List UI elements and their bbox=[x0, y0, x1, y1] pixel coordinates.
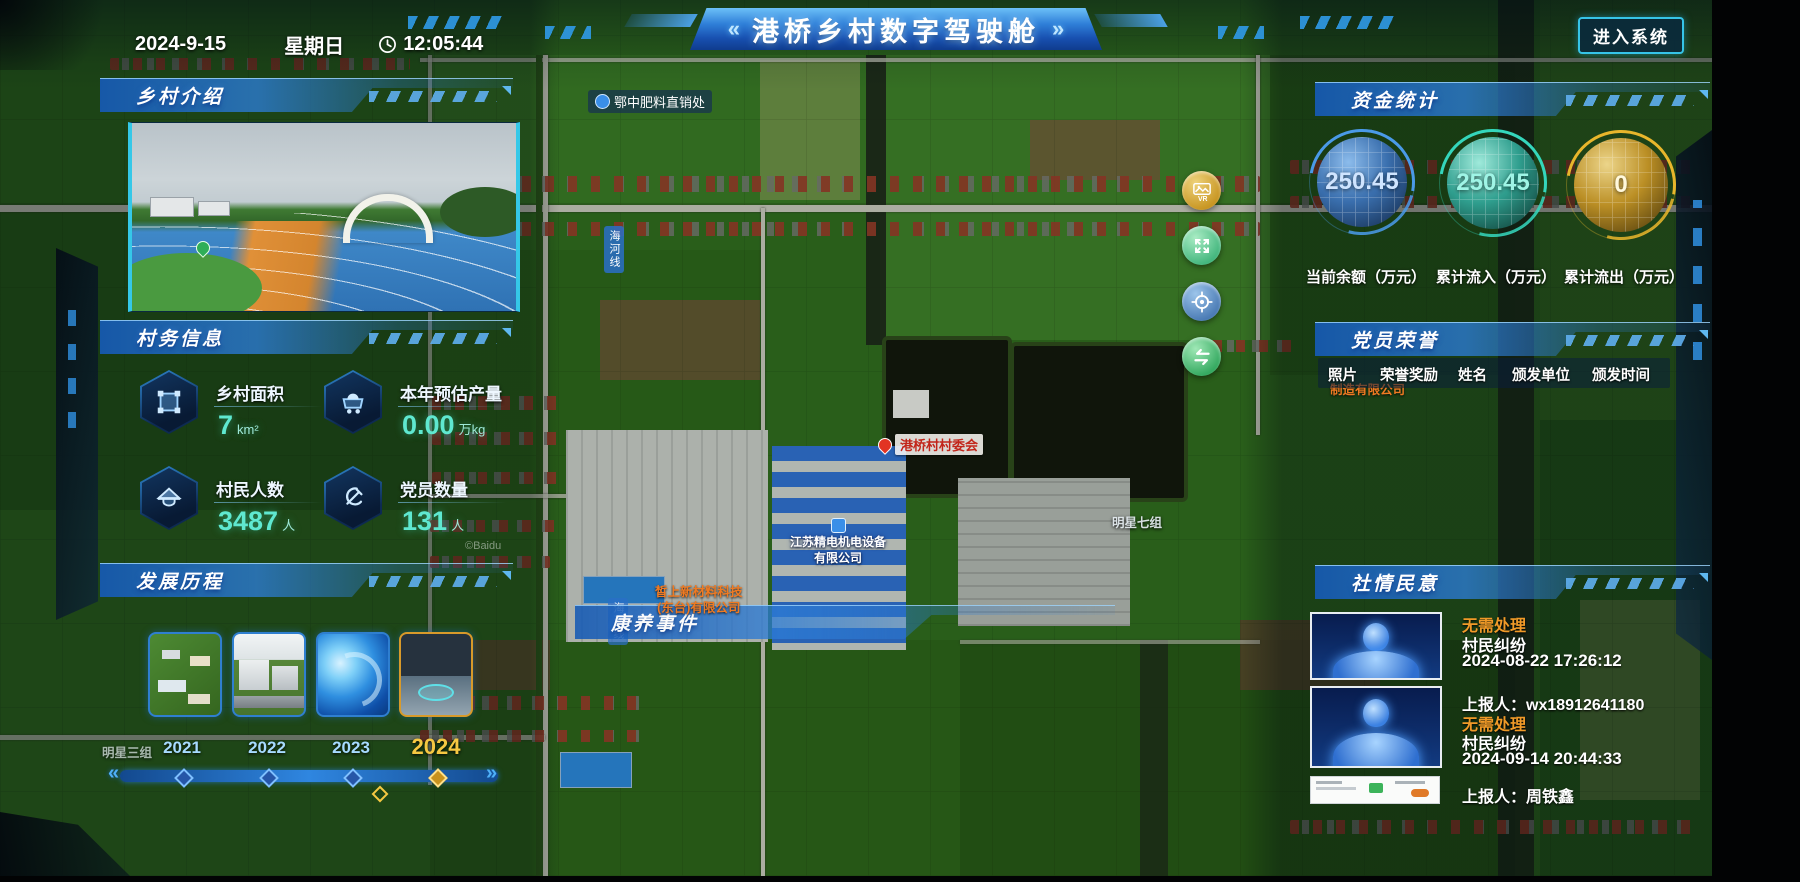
column-issuing-unit: 颁发单位 bbox=[1512, 364, 1570, 385]
opinion-time: 2024-08-22 17:26:12 bbox=[1462, 651, 1622, 671]
village-intro-photo[interactable] bbox=[128, 122, 520, 312]
panel-title: 乡村介绍 bbox=[136, 82, 224, 109]
enter-system-button[interactable]: 进入系统 bbox=[1578, 17, 1684, 54]
label-mingxing-7: 明星七组 bbox=[1112, 512, 1162, 531]
development-thumb-2023[interactable] bbox=[316, 632, 390, 717]
poi-dot-icon bbox=[595, 94, 610, 109]
opinion-item-avatar[interactable] bbox=[1310, 612, 1442, 680]
panel-header-party-honor: 党员荣誉 bbox=[1315, 322, 1710, 356]
locate-button[interactable] bbox=[1182, 282, 1221, 321]
band-stripes bbox=[1566, 335, 1694, 346]
band-stripes bbox=[369, 333, 497, 344]
stat-village-area: 乡村面积 7km² bbox=[134, 368, 324, 460]
year-2024-active[interactable]: 2024 bbox=[412, 734, 461, 760]
panel-title: 发展历程 bbox=[136, 567, 224, 594]
clock-icon bbox=[378, 35, 397, 54]
arch-sculpture bbox=[343, 194, 433, 243]
panel-title: 社情民意 bbox=[1351, 569, 1439, 596]
panel-header-development: 发展历程 bbox=[100, 563, 513, 597]
current-date: 2024-9-15 bbox=[135, 33, 226, 56]
timeline-next-arrow[interactable]: » bbox=[486, 762, 497, 785]
development-thumb-2024[interactable] bbox=[399, 632, 473, 717]
band-stripes bbox=[1566, 95, 1694, 106]
title-left-chevrons: « bbox=[728, 16, 740, 42]
opinion-item-screenshot[interactable] bbox=[1310, 776, 1440, 804]
banner-wing-right bbox=[1094, 14, 1168, 27]
development-thumb-2021[interactable] bbox=[148, 632, 222, 717]
band-stripes bbox=[1566, 578, 1694, 589]
gauge-total-inflow: 250.45 bbox=[1447, 137, 1539, 229]
fullscreen-icon bbox=[1190, 234, 1214, 258]
gauge-label-outflow: 累计流出（万元） bbox=[1564, 266, 1684, 287]
stat-villager-count: 村民人数 3487人 bbox=[134, 464, 324, 556]
panel-title: 党员荣誉 bbox=[1351, 326, 1439, 353]
header-dash-decoration-left bbox=[545, 26, 591, 39]
current-time: 12:05:44 bbox=[403, 33, 483, 56]
panel-header-public-opinion: 社情民意 bbox=[1315, 565, 1710, 599]
layer-switch-button[interactable] bbox=[1182, 337, 1221, 376]
stat-party-member-count: 党员数量 131人 bbox=[318, 464, 508, 556]
poi-jingdian-company[interactable]: 江苏精电机电设备 有限公司 bbox=[790, 518, 886, 566]
development-thumb-2022[interactable] bbox=[232, 632, 306, 717]
column-photo: 照片 bbox=[1328, 364, 1357, 385]
panel-title: 村务信息 bbox=[136, 324, 224, 351]
datetime-bar: 2024-9-15 星期日 12:05:44 bbox=[135, 30, 483, 59]
page-title-banner: « 港桥乡村数字驾驶舱 » bbox=[690, 8, 1102, 50]
swap-arrows-icon bbox=[1189, 344, 1215, 370]
column-issue-date: 颁发时间 bbox=[1592, 364, 1650, 385]
fullscreen-button[interactable] bbox=[1182, 226, 1221, 265]
corner-decoration-top-left bbox=[0, 0, 120, 70]
vr-view-button[interactable]: VR bbox=[1182, 171, 1221, 210]
column-honor-award: 荣誉奖励 bbox=[1380, 364, 1438, 385]
header-dash-decoration-right bbox=[1218, 26, 1264, 39]
poi-village-committee[interactable]: 港桥村村委会 bbox=[878, 434, 983, 455]
locate-icon bbox=[1189, 289, 1215, 315]
party-honor-table-header: 照片 荣誉奖励 姓名 颁发单位 颁发时间 bbox=[1318, 358, 1670, 388]
band-stripes bbox=[369, 576, 497, 587]
vr-image-icon: VR bbox=[1189, 178, 1215, 204]
opinion-item-avatar[interactable] bbox=[1310, 686, 1442, 768]
dashboard-root: ©Baidu 鄂中肥料直销处 港桥村村委会 江苏精电机电设备 有限公司 皙上新材… bbox=[0, 0, 1800, 882]
building-marker-icon bbox=[831, 518, 846, 533]
panel-header-village-info: 村务信息 bbox=[100, 320, 513, 354]
map-pin-icon bbox=[875, 435, 895, 455]
poi-xinshang-company[interactable]: 皙上新材料科技 (东台)有限公司 bbox=[655, 584, 743, 617]
gauge-current-balance: 250.45 bbox=[1317, 137, 1407, 227]
column-name: 姓名 bbox=[1458, 364, 1487, 385]
gauge-label-inflow: 累计流入（万元） bbox=[1436, 266, 1556, 287]
opinion-reporter: 上报人：周铁鑫 bbox=[1462, 783, 1574, 807]
panel-header-funds: 资金统计 bbox=[1315, 82, 1710, 116]
gauge-label-balance: 当前余额（万元） bbox=[1306, 266, 1426, 287]
panel-header-village-intro: 乡村介绍 bbox=[100, 78, 513, 112]
year-2021[interactable]: 2021 bbox=[163, 738, 201, 758]
header-dash-decoration-right-far bbox=[1300, 16, 1396, 29]
svg-text:VR: VR bbox=[1197, 195, 1207, 202]
header-dash-decoration-left-far bbox=[408, 16, 504, 29]
label-mingxing-3: 明星三组 bbox=[102, 742, 152, 761]
year-2022[interactable]: 2022 bbox=[248, 738, 286, 758]
gauge-total-outflow: 0 bbox=[1574, 138, 1668, 232]
year-2023[interactable]: 2023 bbox=[332, 738, 370, 758]
title-right-chevrons: » bbox=[1052, 16, 1064, 42]
banner-wing-left bbox=[624, 14, 698, 27]
page-title: 港桥乡村数字驾驶舱 bbox=[752, 10, 1040, 49]
opinion-time: 2024-09-14 20:44:33 bbox=[1462, 749, 1622, 769]
timeline-prev-arrow[interactable]: « bbox=[108, 762, 119, 785]
band-stripes bbox=[369, 91, 497, 102]
road-label-haihexian-north: 海河线 bbox=[604, 226, 624, 273]
current-weekday: 星期日 bbox=[284, 30, 344, 59]
poi-fertilizer-shop[interactable]: 鄂中肥料直销处 bbox=[588, 90, 712, 113]
left-edge-frame bbox=[56, 248, 98, 620]
stat-estimated-output: 本年预估产量 0.00万kg bbox=[318, 368, 508, 460]
panel-title: 资金统计 bbox=[1351, 86, 1439, 113]
